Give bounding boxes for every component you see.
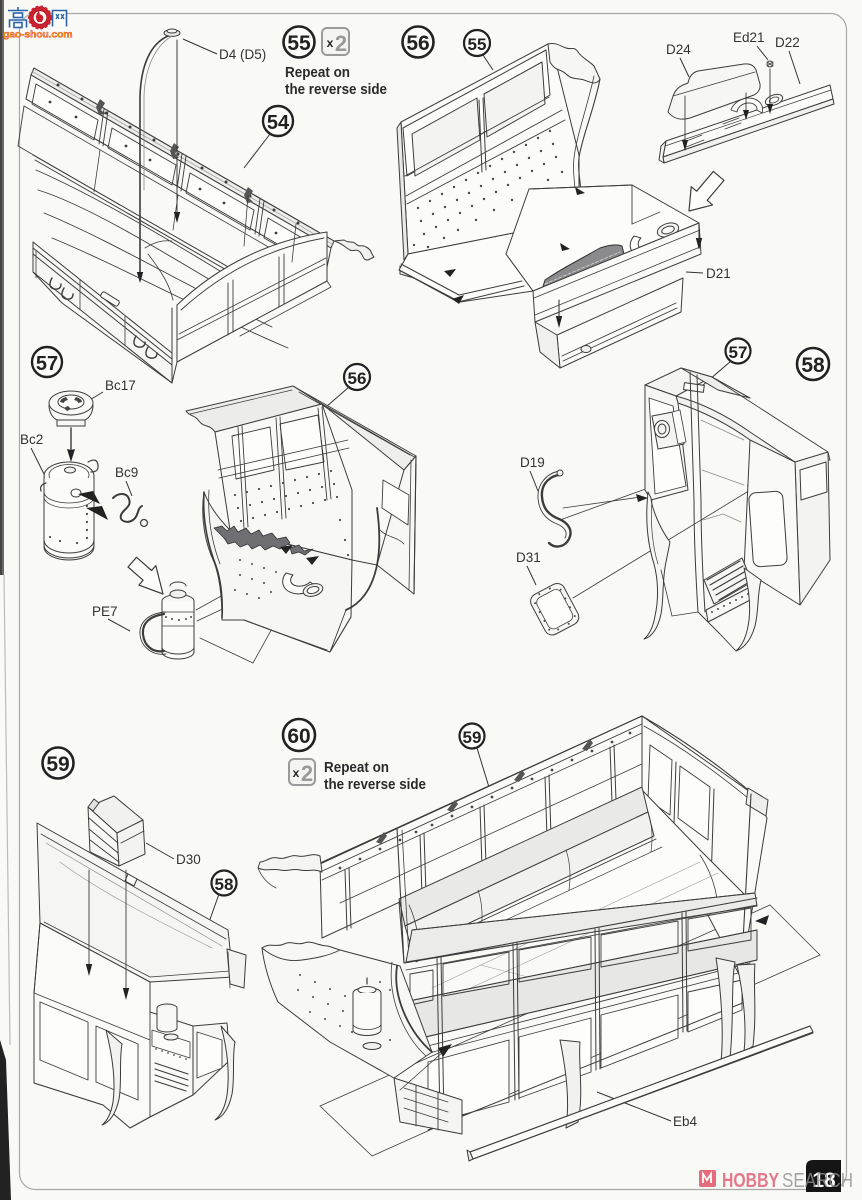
svg-text:Bc17: Bc17 <box>105 378 136 393</box>
svg-text:the reverse side: the reverse side <box>324 776 426 793</box>
svg-text:Repeat on: Repeat on <box>285 64 350 81</box>
svg-text:Eb4: Eb4 <box>673 1114 698 1129</box>
svg-text:Repeat on: Repeat on <box>324 759 389 776</box>
svg-text:58: 58 <box>215 875 234 894</box>
svg-text:56: 56 <box>348 369 367 388</box>
svg-text:gao-shou.com: gao-shou.com <box>3 29 72 41</box>
svg-text:55: 55 <box>287 32 311 55</box>
svg-text:60: 60 <box>287 725 310 748</box>
svg-text:x: x <box>293 766 300 780</box>
svg-text:Ed21: Ed21 <box>733 30 765 45</box>
svg-text:2: 2 <box>301 761 313 786</box>
svg-text:Bc2: Bc2 <box>20 432 43 447</box>
svg-text:59: 59 <box>463 728 482 747</box>
svg-text:Bc9: Bc9 <box>115 465 138 480</box>
svg-text:58: 58 <box>801 354 825 377</box>
svg-text:59: 59 <box>46 753 69 776</box>
svg-text:57: 57 <box>729 343 748 362</box>
svg-text:the reverse side: the reverse side <box>285 81 387 98</box>
svg-text:D24: D24 <box>666 42 691 57</box>
svg-text:HOBBY: HOBBY <box>722 1170 780 1192</box>
svg-text:55: 55 <box>468 35 487 54</box>
svg-text:D4 (D5): D4 (D5) <box>219 47 266 62</box>
svg-text:54: 54 <box>267 112 290 134</box>
svg-text:x: x <box>327 36 334 50</box>
svg-text:2: 2 <box>335 31 347 56</box>
svg-text:SEARCH: SEARCH <box>782 1170 853 1192</box>
svg-text:D22: D22 <box>775 35 800 50</box>
svg-text:57: 57 <box>36 353 58 375</box>
svg-text:PE7: PE7 <box>92 604 118 619</box>
svg-text:56: 56 <box>406 32 429 55</box>
svg-text:D21: D21 <box>706 266 731 281</box>
svg-text:D30: D30 <box>176 852 201 867</box>
svg-text:D19: D19 <box>520 455 545 470</box>
svg-text:D31: D31 <box>516 550 541 565</box>
